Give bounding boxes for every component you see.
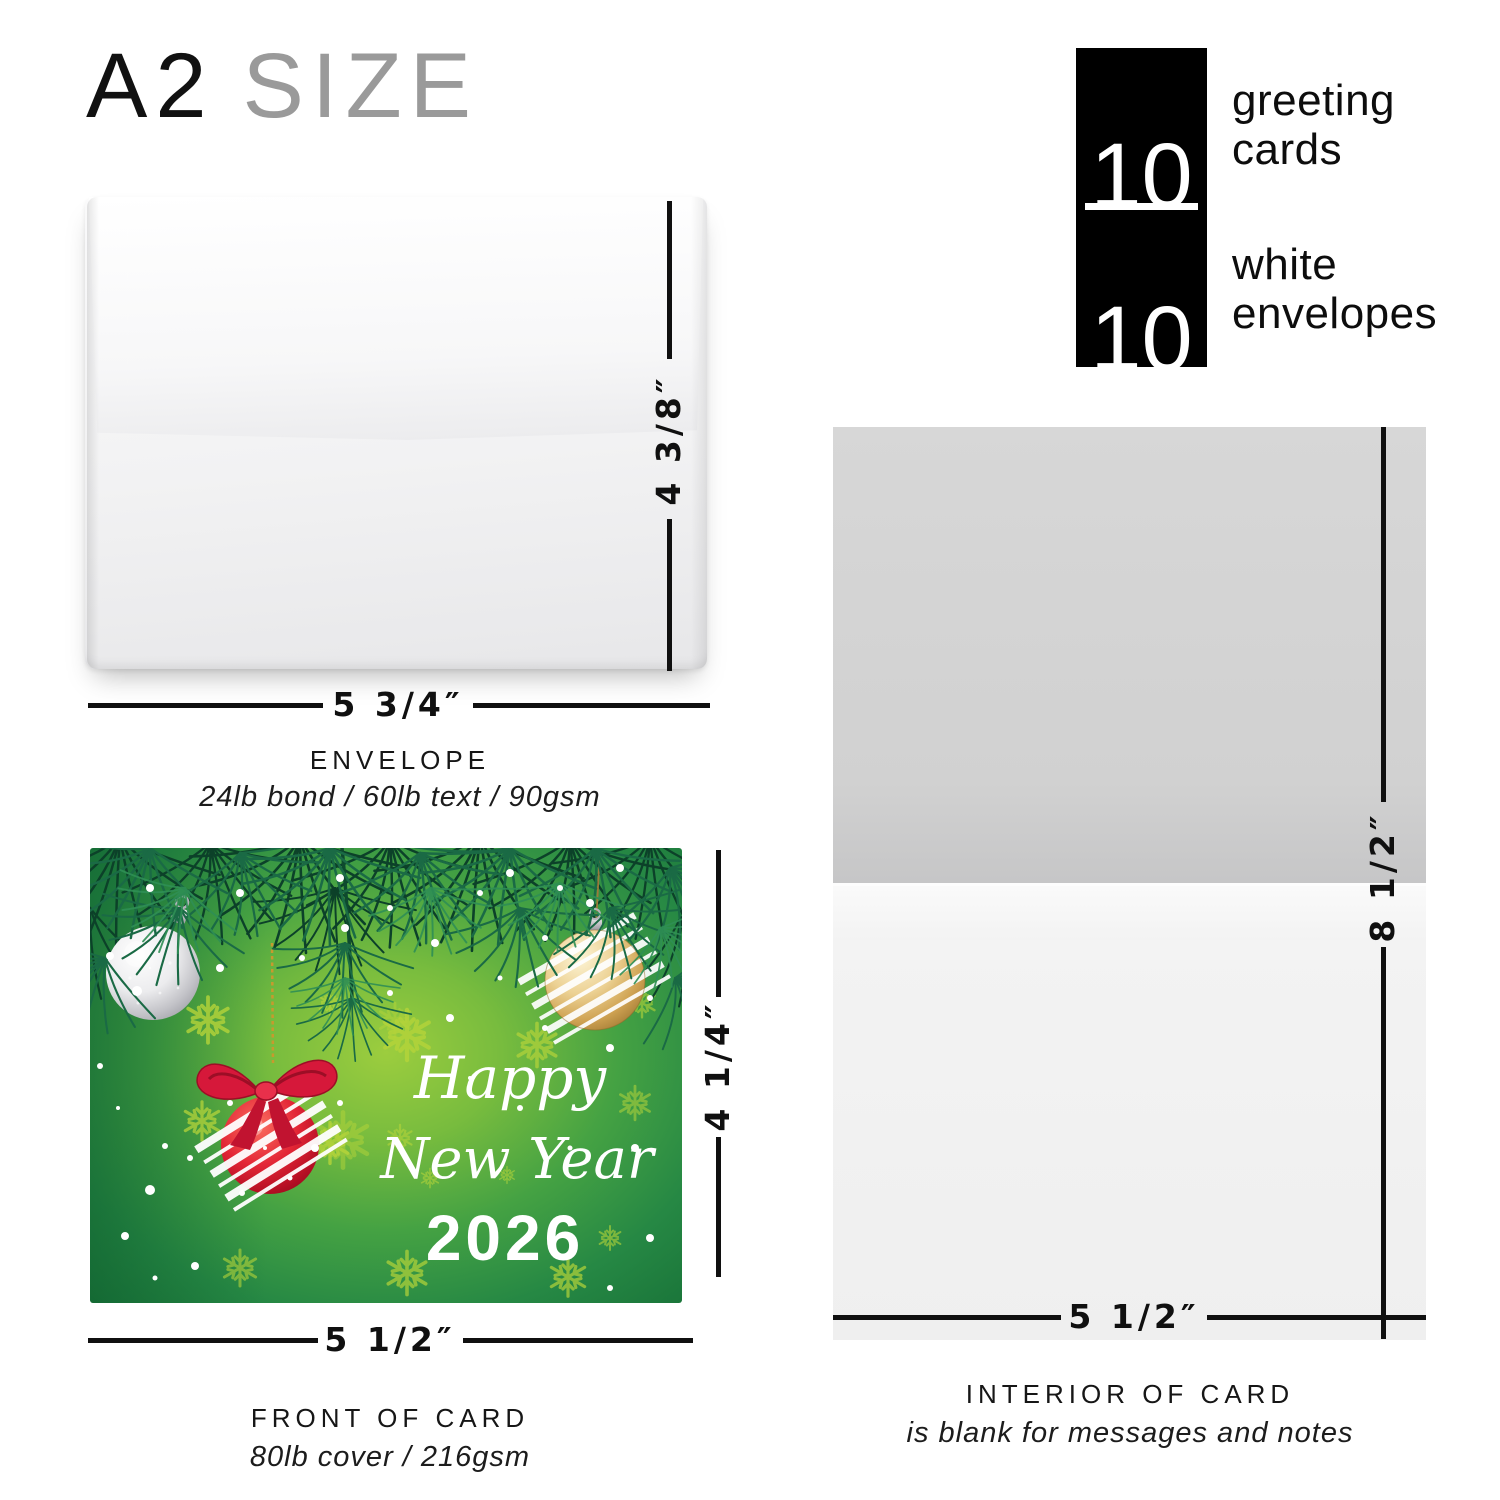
envelope-right-edge-shade [691,197,707,669]
front-card-height-label: 4 1/4″ [698,966,738,1166]
card-greeting-line2: New Year [378,1127,657,1192]
cards-count-label: greeting cards [1232,76,1395,175]
page-title-secondary: SIZE [243,35,479,137]
bundle-count-box: 10 10 [1076,48,1207,367]
envelope-height-line-bottom [667,519,672,671]
envelopes-count: 10 [1076,293,1207,385]
envelope-width-label: 5 3/4″ [298,685,498,725]
product-sheet: A2SIZE 10 10 greeting cards white envelo… [0,0,1500,1500]
interior-width-line-right [1207,1315,1426,1320]
envelope-height-label: 4 3/8″ [649,340,689,540]
page-title-primary: A2 [86,35,215,137]
envelope-spec: 24lb bond / 60lb text / 90gsm [50,781,750,814]
interior-width-line-left [833,1315,1061,1320]
interior-height-line-bottom [1381,947,1386,1339]
front-card-name: FRONT OF CARD [90,1403,690,1434]
envelope-height-line-top [667,201,672,359]
interior-height-line-top [1381,427,1386,802]
envelopes-count-label: white envelopes [1232,240,1437,339]
interior-card-spec: is blank for messages and notes [780,1417,1480,1450]
front-card-image: Happy New Year 2026 [90,848,682,1303]
front-card-spec: 80lb cover / 216gsm [40,1441,740,1474]
interior-card-image [833,427,1426,1340]
cards-count-label-line1: greeting [1232,76,1395,125]
interior-card-top-panel [833,427,1426,883]
envelope-width-line-right [473,703,710,708]
envelope-name: ENVELOPE [100,745,700,776]
interior-card-bottom-panel [833,883,1426,1340]
interior-card-name: INTERIOR OF CARD [830,1379,1430,1410]
interior-height-label: 8 1/2″ [1363,777,1403,977]
cards-count-label-line2: cards [1232,125,1395,174]
count-divider [1085,203,1198,210]
envelope-image [85,197,707,669]
envelope-left-edge-shade [87,197,99,669]
card-greeting-line1: Happy [413,1044,607,1112]
envelope-width-line-left [88,703,323,708]
page-title: A2SIZE [86,40,479,132]
envelopes-count-label-line2: envelopes [1232,289,1437,338]
interior-width-label: 5 1/2″ [1034,1297,1234,1337]
envelope-flap [85,197,707,440]
front-card-width-label: 5 1/2″ [290,1320,490,1360]
front-card-width-line-left [88,1338,318,1343]
card-year: 2026 [426,1202,584,1274]
front-card-width-line-right [463,1338,693,1343]
envelopes-count-label-line1: white [1232,240,1437,289]
front-card-art: Happy New Year 2026 [90,848,682,1303]
